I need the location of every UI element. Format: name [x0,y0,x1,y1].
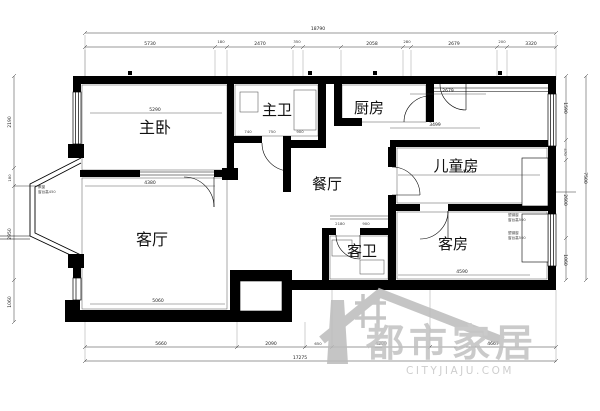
window-note: 塑钢窗 [508,212,519,217]
dim-bath-c: 900 [296,129,304,134]
dim-right-seg: 470 [563,148,568,156]
left-dimension-labels: 2190 180 2950 1060 [7,116,13,308]
duct-shaft [240,281,282,311]
room-labels: 主卧 主卫 厨房 餐厅 儿童房 客厅 客卫 客房 [136,99,479,260]
dim-hall-b: 900 [362,221,370,226]
dim-top-seg: 2470 [254,41,266,47]
dim-bottom-seg: 5660 [155,341,167,347]
dim-top-seg: 350 [293,39,301,44]
dim-left-seg: 1060 [7,296,13,308]
dim-top-seg: 180 [217,39,225,44]
room-label-master-bath: 主卫 [262,101,292,119]
house-chimney-icon [327,300,348,364]
dim-hall-a: 2180 [335,221,345,226]
dim-right-seg: 2600 [562,194,568,206]
floor-plan-canvas: 18790 5730 180 2470 350 2058 280 2679 20… [0,0,600,411]
window-note: 塑钢窗 [508,230,519,235]
watermark-domain-text: CITYJIAJU.COM [406,365,514,377]
floor-plan-drawing: 18790 5730 180 2470 350 2058 280 2679 20… [0,0,600,411]
window-note: 窗台高500 [508,235,526,240]
dim-top-seg: 2679 [448,41,460,47]
windows [0,88,556,300]
dim-top-seg: 280 [403,39,411,44]
dim-master-top: 5290 [149,107,161,113]
bay-window-note: 窗台高450 [38,189,56,194]
dim-left-seg: 180 [7,174,12,182]
left-dimension-lines [12,74,40,324]
dim-top-total: 18790 [311,26,325,32]
room-label-dining: 餐厅 [312,175,342,193]
dim-top-seg: 3320 [525,41,537,47]
dim-living-top: 4380 [144,180,156,186]
dim-kids-top: 3499 [429,122,441,128]
dim-entry-width: 2679 [442,88,454,94]
room-label-guest-room: 客房 [438,235,468,253]
dim-guest-width: 4590 [456,269,468,275]
dim-left-seg: 2190 [7,116,13,128]
dim-right-seg: 1590 [562,102,568,114]
room-label-kids-room: 儿童房 [433,157,478,175]
dim-bottom-seg: 650 [314,341,322,346]
room-label-kitchen: 厨房 [354,99,384,117]
dim-top-seg: 5730 [144,41,156,47]
dim-bath-b: 750 [268,129,276,134]
dim-top-seg: 200 [498,39,506,44]
window-note: 窗台高500 [508,217,526,222]
dim-living-bottom: 5060 [152,298,164,304]
room-label-guest-bath: 客卫 [347,242,377,260]
bay-window-note: 飘窗 [38,184,46,189]
dim-top-seg: 2058 [366,41,378,47]
dim-left-seg: 2950 [7,228,13,240]
walls [65,71,556,322]
dim-bottom-seg: 2090 [265,341,277,347]
room-label-living-room: 客厅 [136,230,168,249]
top-dimension-labels: 18790 5730 180 2470 350 2058 280 2679 20… [144,26,537,47]
dim-right-seg: 1060 [562,254,568,266]
interior-dimension-labels: 5290 4380 5060 3499 4064 2679 4590 740 7… [144,88,474,304]
dim-bath-a: 740 [244,129,252,134]
watermark-brand-text: 都市家居 [365,321,538,365]
room-label-master-bedroom: 主卧 [139,118,171,137]
dim-right-total: 7500 [582,172,588,184]
dim-bottom-total: 17275 [293,355,307,361]
